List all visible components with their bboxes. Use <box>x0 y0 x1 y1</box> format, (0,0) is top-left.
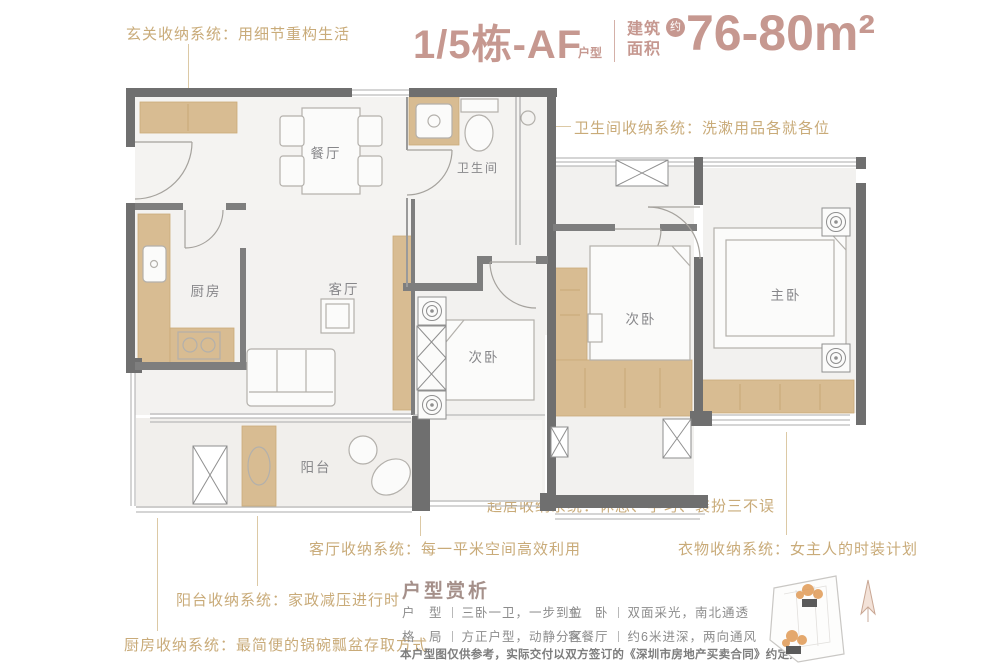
room-label-bedroom2: 次卧 <box>469 350 500 365</box>
toilet-bowl <box>465 115 493 151</box>
room-label-master: 主卧 <box>771 288 802 303</box>
room-label-kitchen: 厨房 <box>191 284 222 299</box>
room-label-bathroom: 卫生间 <box>457 161 499 175</box>
unit-badge <box>786 646 801 654</box>
bedroom3-bed <box>590 246 690 360</box>
room-label-balcony: 阳台 <box>301 460 332 475</box>
speaker-box <box>418 297 446 325</box>
speaker-box <box>822 208 850 236</box>
speaker-box <box>822 344 850 372</box>
divider <box>452 631 453 642</box>
compass-icon <box>861 580 875 622</box>
analysis-item-master: 主 卧双面采光，南北通透 <box>568 602 749 621</box>
divider <box>618 607 619 618</box>
toilet-tank <box>461 99 498 112</box>
unit-badge <box>802 599 817 607</box>
site-minimap <box>756 570 1000 665</box>
floorplan-page: 1/5栋-AF 户型 建筑 面积 约 76-80m² 玄关收纳系统：用细节重构生… <box>0 0 1000 666</box>
divider <box>618 631 619 642</box>
room-label-bedroom3: 次卧 <box>626 312 657 327</box>
room-label-living: 客厅 <box>329 281 360 297</box>
balcony-table <box>349 436 377 464</box>
bedroom2-wardrobe <box>417 326 446 390</box>
bedroom3-desk <box>588 314 602 342</box>
analysis-item-livingdining: 客餐厅约6米进深，两向通风 <box>568 626 757 645</box>
room-label-dining: 餐厅 <box>311 146 342 161</box>
analysis-item-layout: 户 型三卧一卫，一步到位 <box>402 602 583 621</box>
floorplan-drawing: 餐厅 卫生间 厨房 客厅 次卧 次卧 主卧 阳台 <box>0 0 1000 666</box>
sofa <box>247 349 335 406</box>
analysis-title: 户型赏析 <box>402 576 490 603</box>
speaker-box <box>418 391 446 419</box>
analysis-item-structure: 格 局方正户型，动静分区 <box>402 626 583 645</box>
kitchen-sink <box>143 246 166 282</box>
divider <box>452 607 453 618</box>
bathroom-sink <box>416 104 452 138</box>
